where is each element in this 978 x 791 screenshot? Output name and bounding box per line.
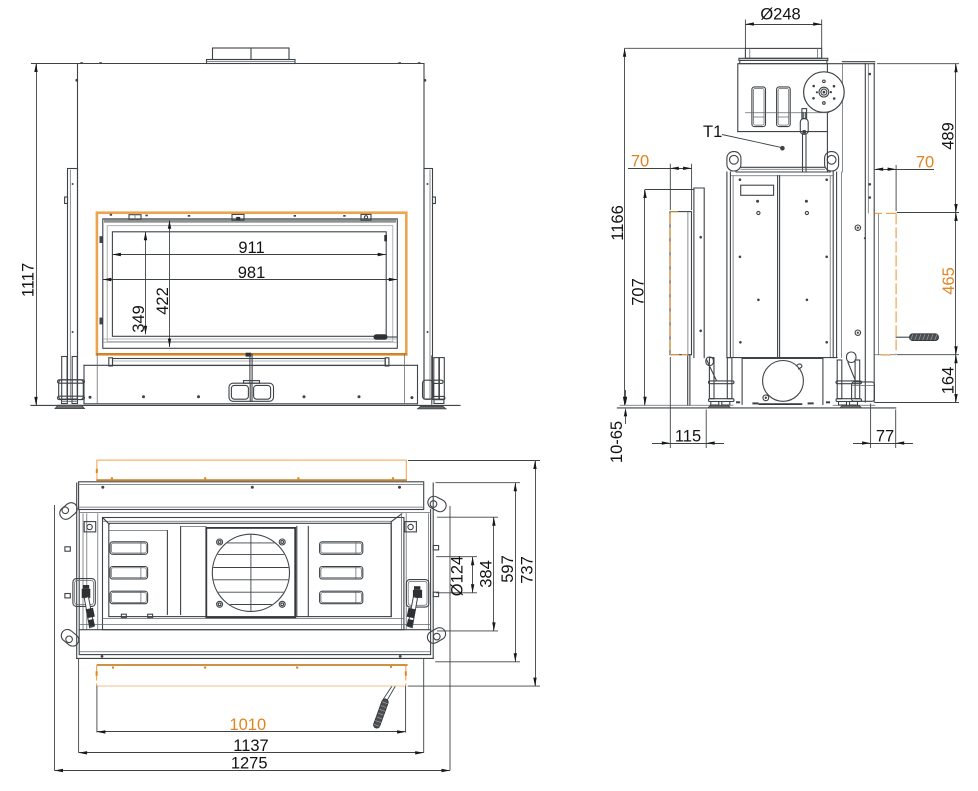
svg-text:737: 737 bbox=[519, 556, 537, 584]
svg-text:1275: 1275 bbox=[231, 755, 268, 773]
svg-text:115: 115 bbox=[675, 428, 701, 446]
svg-text:70: 70 bbox=[916, 153, 934, 171]
svg-text:981: 981 bbox=[238, 264, 266, 282]
svg-text:10-65: 10-65 bbox=[608, 421, 626, 463]
svg-text:349: 349 bbox=[130, 305, 148, 333]
svg-text:422: 422 bbox=[154, 287, 172, 315]
svg-text:Ø248: Ø248 bbox=[760, 6, 800, 24]
svg-text:707: 707 bbox=[630, 278, 648, 306]
svg-text:1137: 1137 bbox=[233, 737, 268, 755]
svg-text:164: 164 bbox=[940, 367, 958, 395]
svg-text:384: 384 bbox=[478, 560, 496, 588]
svg-text:597: 597 bbox=[499, 555, 517, 583]
svg-text:70: 70 bbox=[631, 153, 649, 171]
svg-text:489: 489 bbox=[940, 122, 958, 150]
svg-text:911: 911 bbox=[238, 239, 264, 257]
svg-text:1117: 1117 bbox=[20, 263, 38, 297]
svg-text:465: 465 bbox=[940, 267, 958, 295]
svg-text:Ø124: Ø124 bbox=[449, 556, 467, 596]
svg-text:1166: 1166 bbox=[609, 205, 627, 240]
svg-text:1010: 1010 bbox=[229, 716, 266, 734]
svg-text:77: 77 bbox=[876, 428, 894, 446]
svg-text:T1: T1 bbox=[703, 123, 722, 141]
